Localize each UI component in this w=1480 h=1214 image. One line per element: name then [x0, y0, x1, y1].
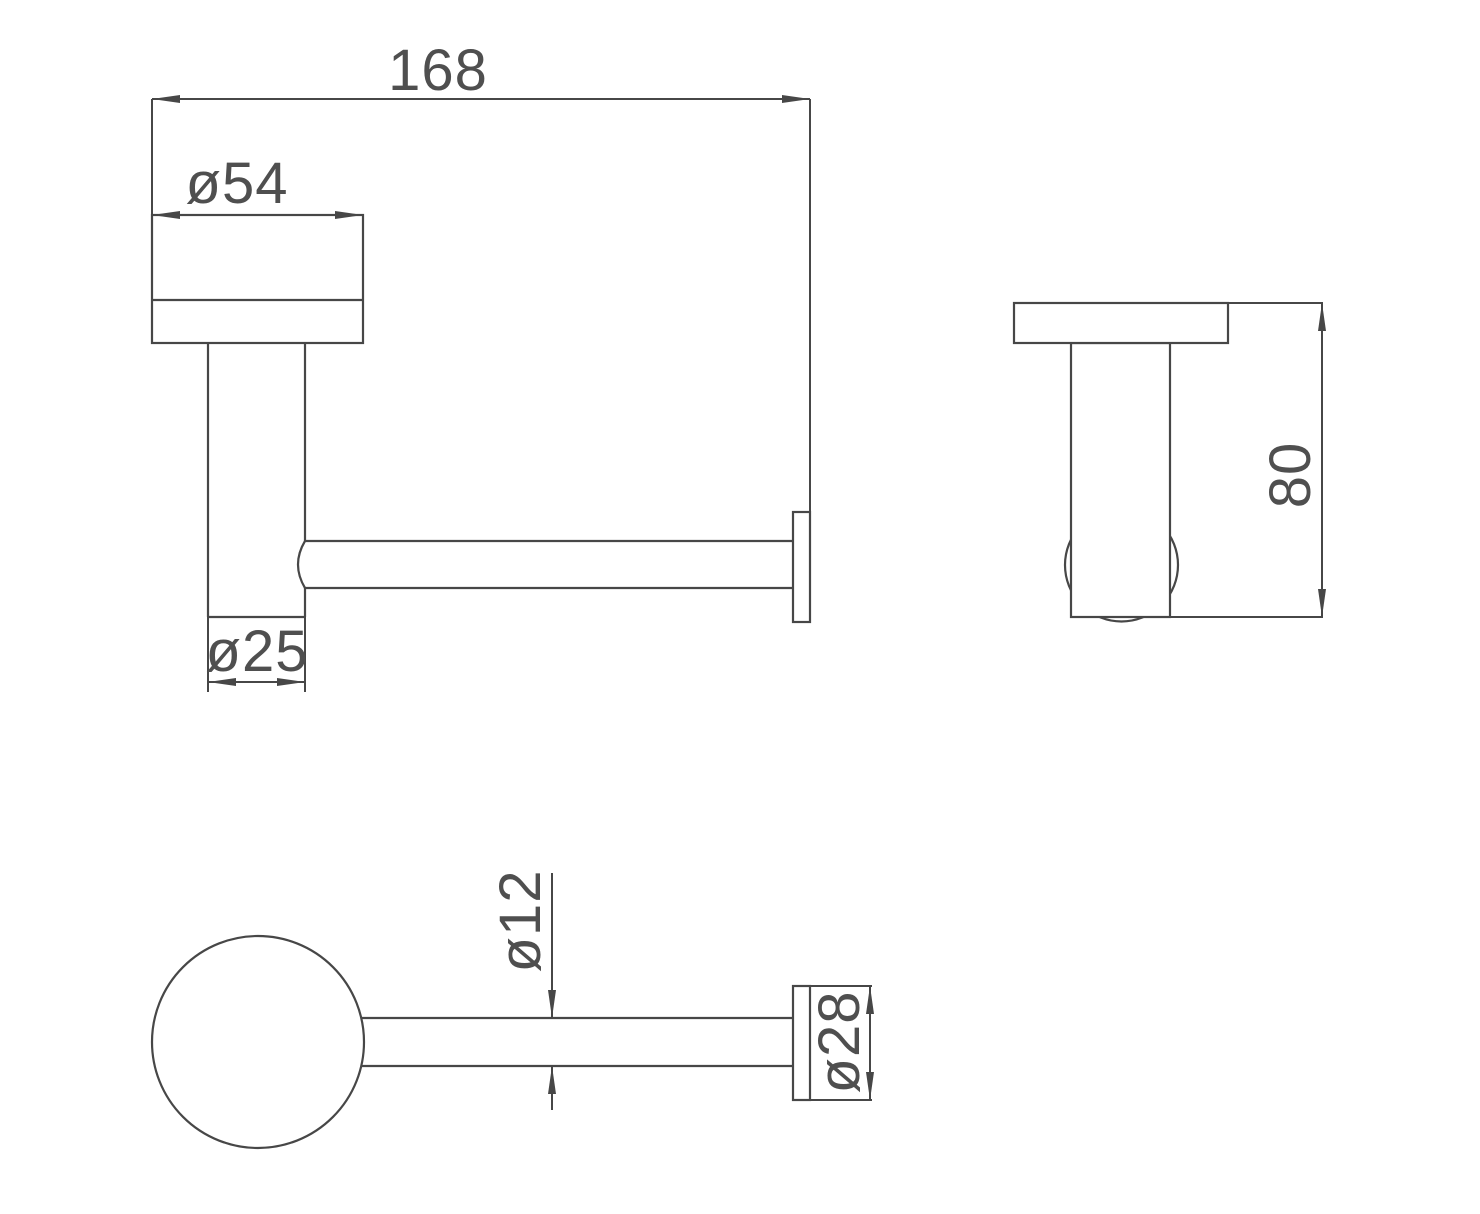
- dim-label-depth: 80: [1262, 442, 1320, 509]
- end-cap-outline: [793, 512, 810, 622]
- technical-drawing-page: 168 ø54 ø25 80 ø12 ø28: [0, 0, 1480, 1214]
- dim-label-overall-length: 168: [388, 42, 488, 100]
- arrowhead-up-icon: [1318, 303, 1326, 331]
- dim-label-bar-diameter: ø12: [492, 870, 550, 973]
- dim-label-flange-diameter: ø54: [186, 155, 289, 213]
- flange-side-outline: [1014, 303, 1228, 343]
- arrowhead-up-icon: [548, 1066, 556, 1094]
- wall-flange-outline: [152, 215, 363, 343]
- arrowhead-right-icon: [335, 211, 363, 219]
- post-bar-fillet: [298, 541, 305, 588]
- arrowhead-down-icon: [1318, 589, 1326, 617]
- arrowhead-right-icon: [782, 95, 810, 103]
- flange-circle: [152, 936, 364, 1148]
- arrowhead-left-icon: [152, 95, 180, 103]
- post-side-outline: [1071, 343, 1170, 617]
- dim-label-cap-diameter: ø28: [811, 991, 869, 1094]
- arrowhead-down-icon: [548, 990, 556, 1018]
- arrowhead-left-icon: [152, 211, 180, 219]
- dim-label-post-diameter: ø25: [206, 623, 309, 681]
